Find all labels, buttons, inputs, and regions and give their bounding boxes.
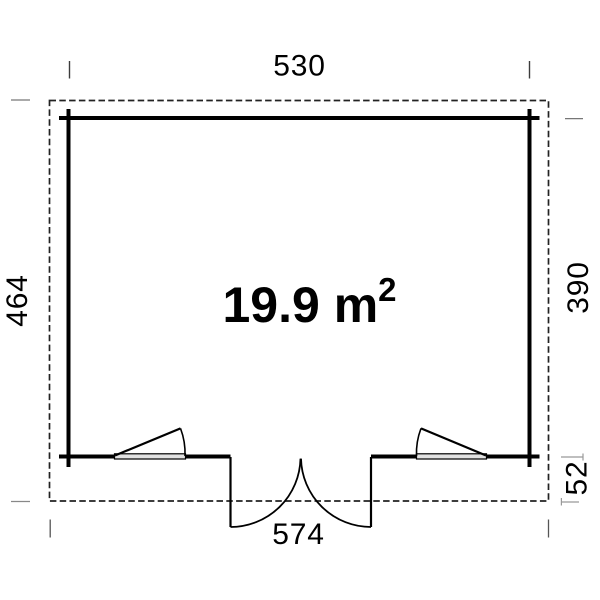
svg-text:574: 574: [272, 518, 324, 551]
svg-text:19.9 m2: 19.9 m2: [223, 271, 397, 333]
svg-text:530: 530: [273, 50, 325, 83]
svg-text:464: 464: [1, 274, 34, 326]
svg-text:52: 52: [561, 461, 594, 496]
svg-text:390: 390: [562, 261, 595, 313]
